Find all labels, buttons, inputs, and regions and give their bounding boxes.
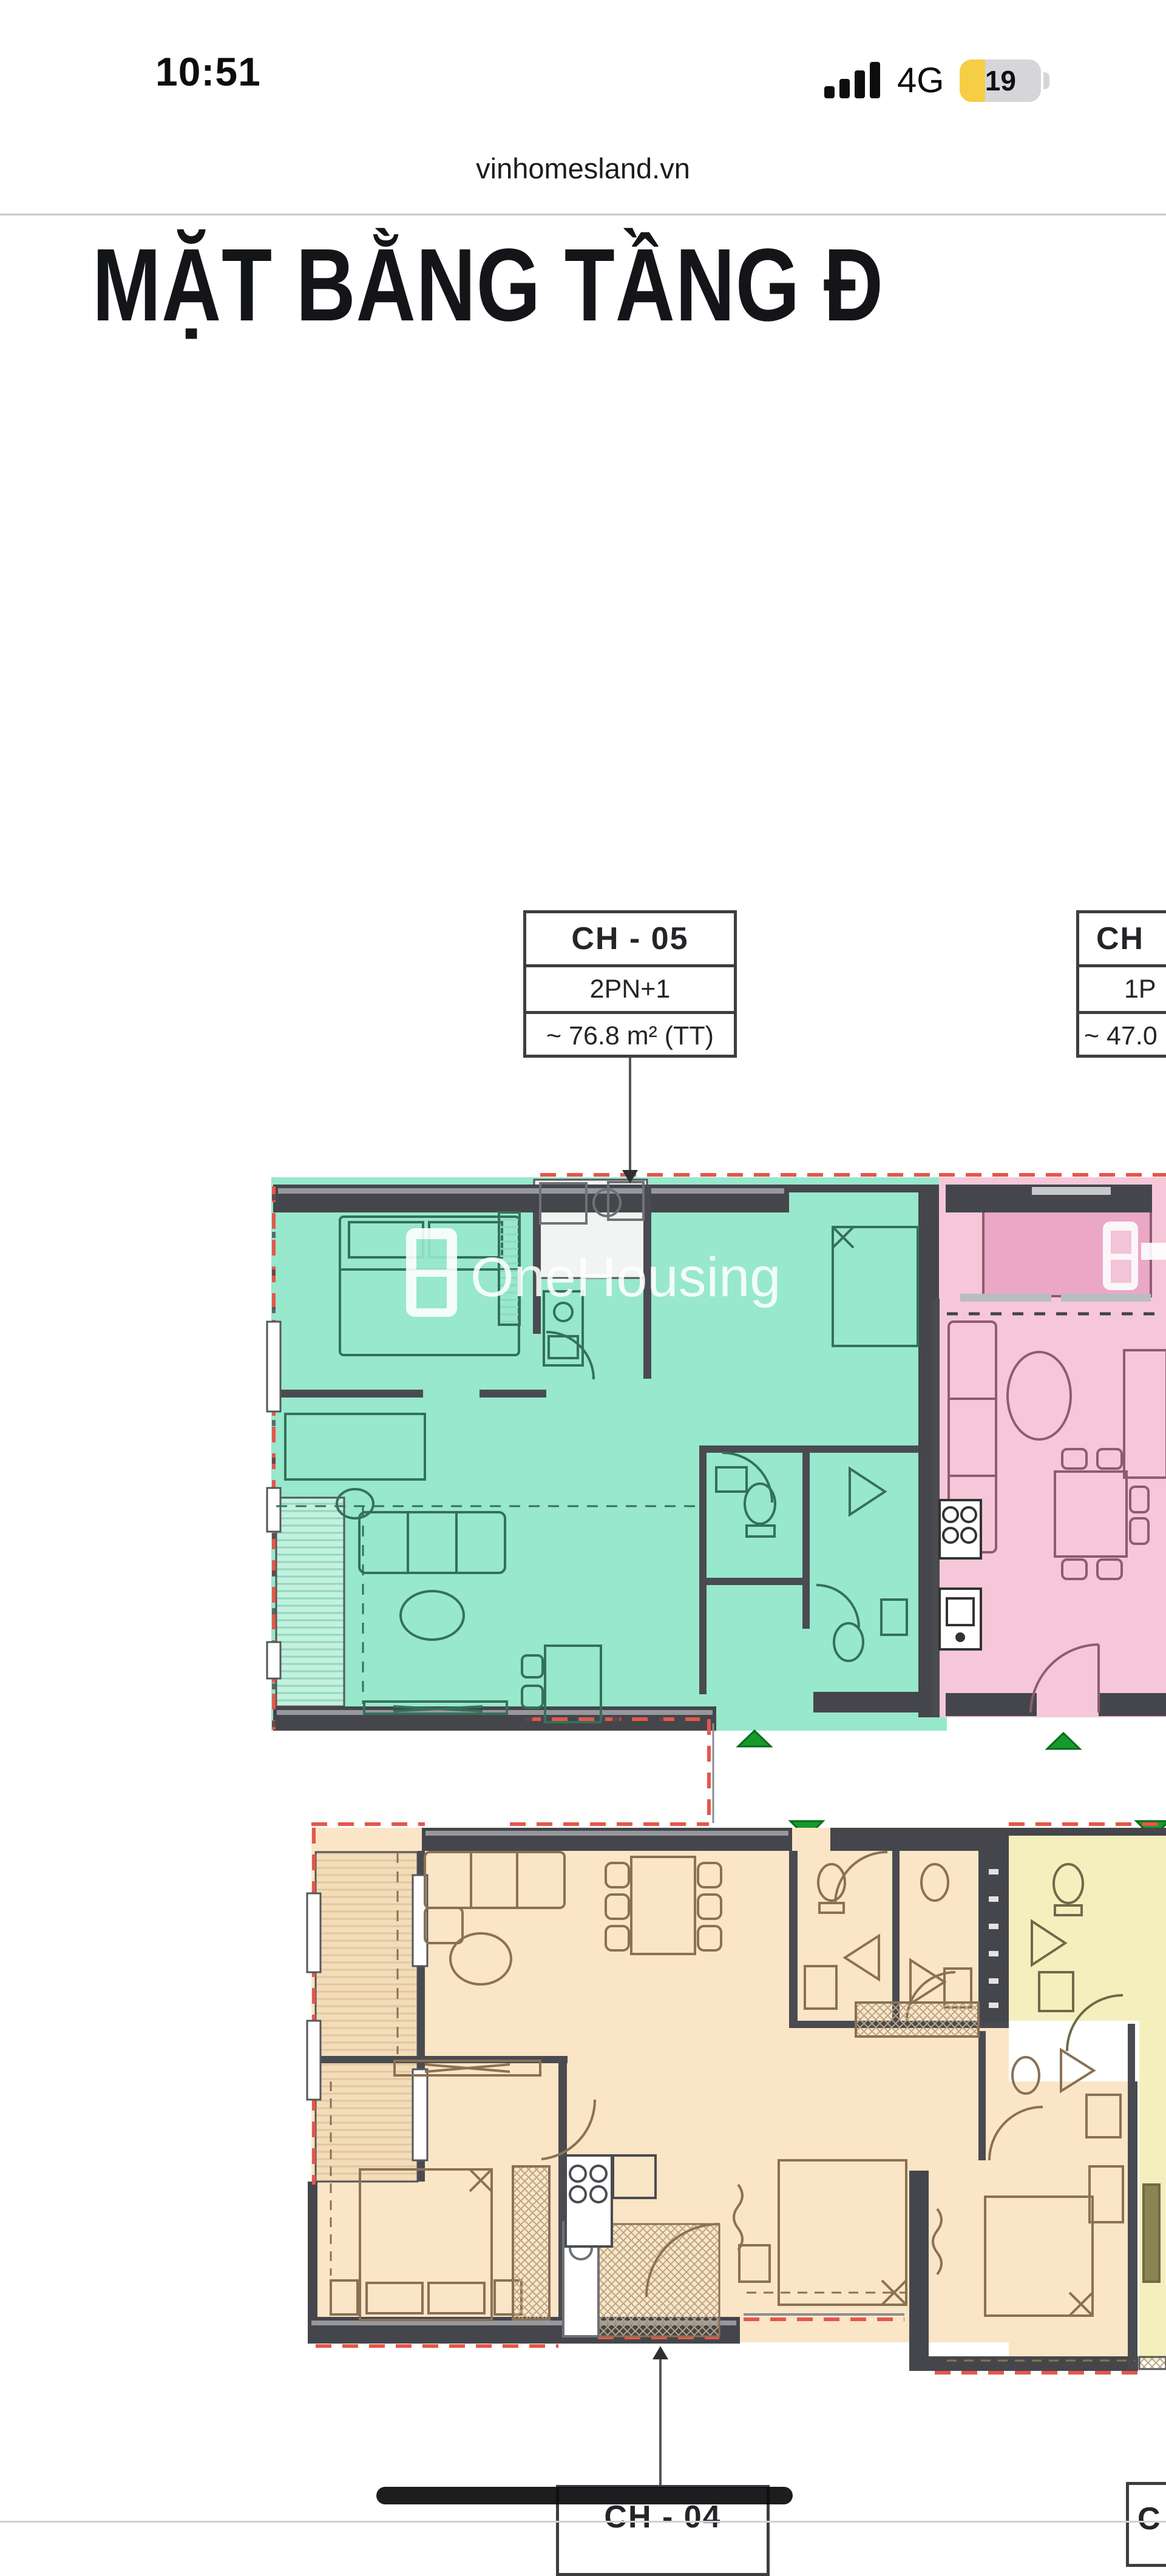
unit-type: 1P — [1124, 975, 1156, 1004]
unit-label-bottom-right-partial: C — [1126, 2482, 1166, 2567]
unit-code: CH — [1096, 921, 1144, 957]
bench — [1144, 2185, 1159, 2282]
unit-label-ch06-partial: CH 1P ~ 47.0 — [1076, 910, 1166, 1058]
home-indicator[interactable] — [376, 2487, 793, 2504]
unit-ch04 — [307, 1824, 1166, 2373]
tv-cabinet — [513, 2166, 549, 2319]
unit-area: ~ 76.8 m² (TT) — [546, 1021, 714, 1051]
balcony — [316, 1852, 418, 2182]
unit-code: CH - 04 — [604, 2499, 721, 2535]
balcony — [276, 1498, 344, 1706]
entrance-arrow-up — [738, 1731, 771, 1746]
watermark-text: OneHousing — [470, 1246, 781, 1308]
entrance-arrow-up — [1047, 1733, 1080, 1749]
corridor-marks — [510, 1719, 1166, 1837]
unit-code: CH - 05 — [571, 921, 688, 957]
unit-label-ch05: CH - 05 2PN+1 ~ 76.8 m² (TT) — [523, 910, 737, 1058]
floor-plan: OneHousing — [0, 0, 1166, 2525]
unit-area: ~ 47.0 — [1084, 1021, 1158, 1051]
hall-hatch — [856, 2003, 978, 2037]
unit-code: C — [1137, 2501, 1162, 2537]
unit-type: 2PN+1 — [590, 975, 671, 1004]
bottom-divider-line — [0, 2521, 1166, 2523]
